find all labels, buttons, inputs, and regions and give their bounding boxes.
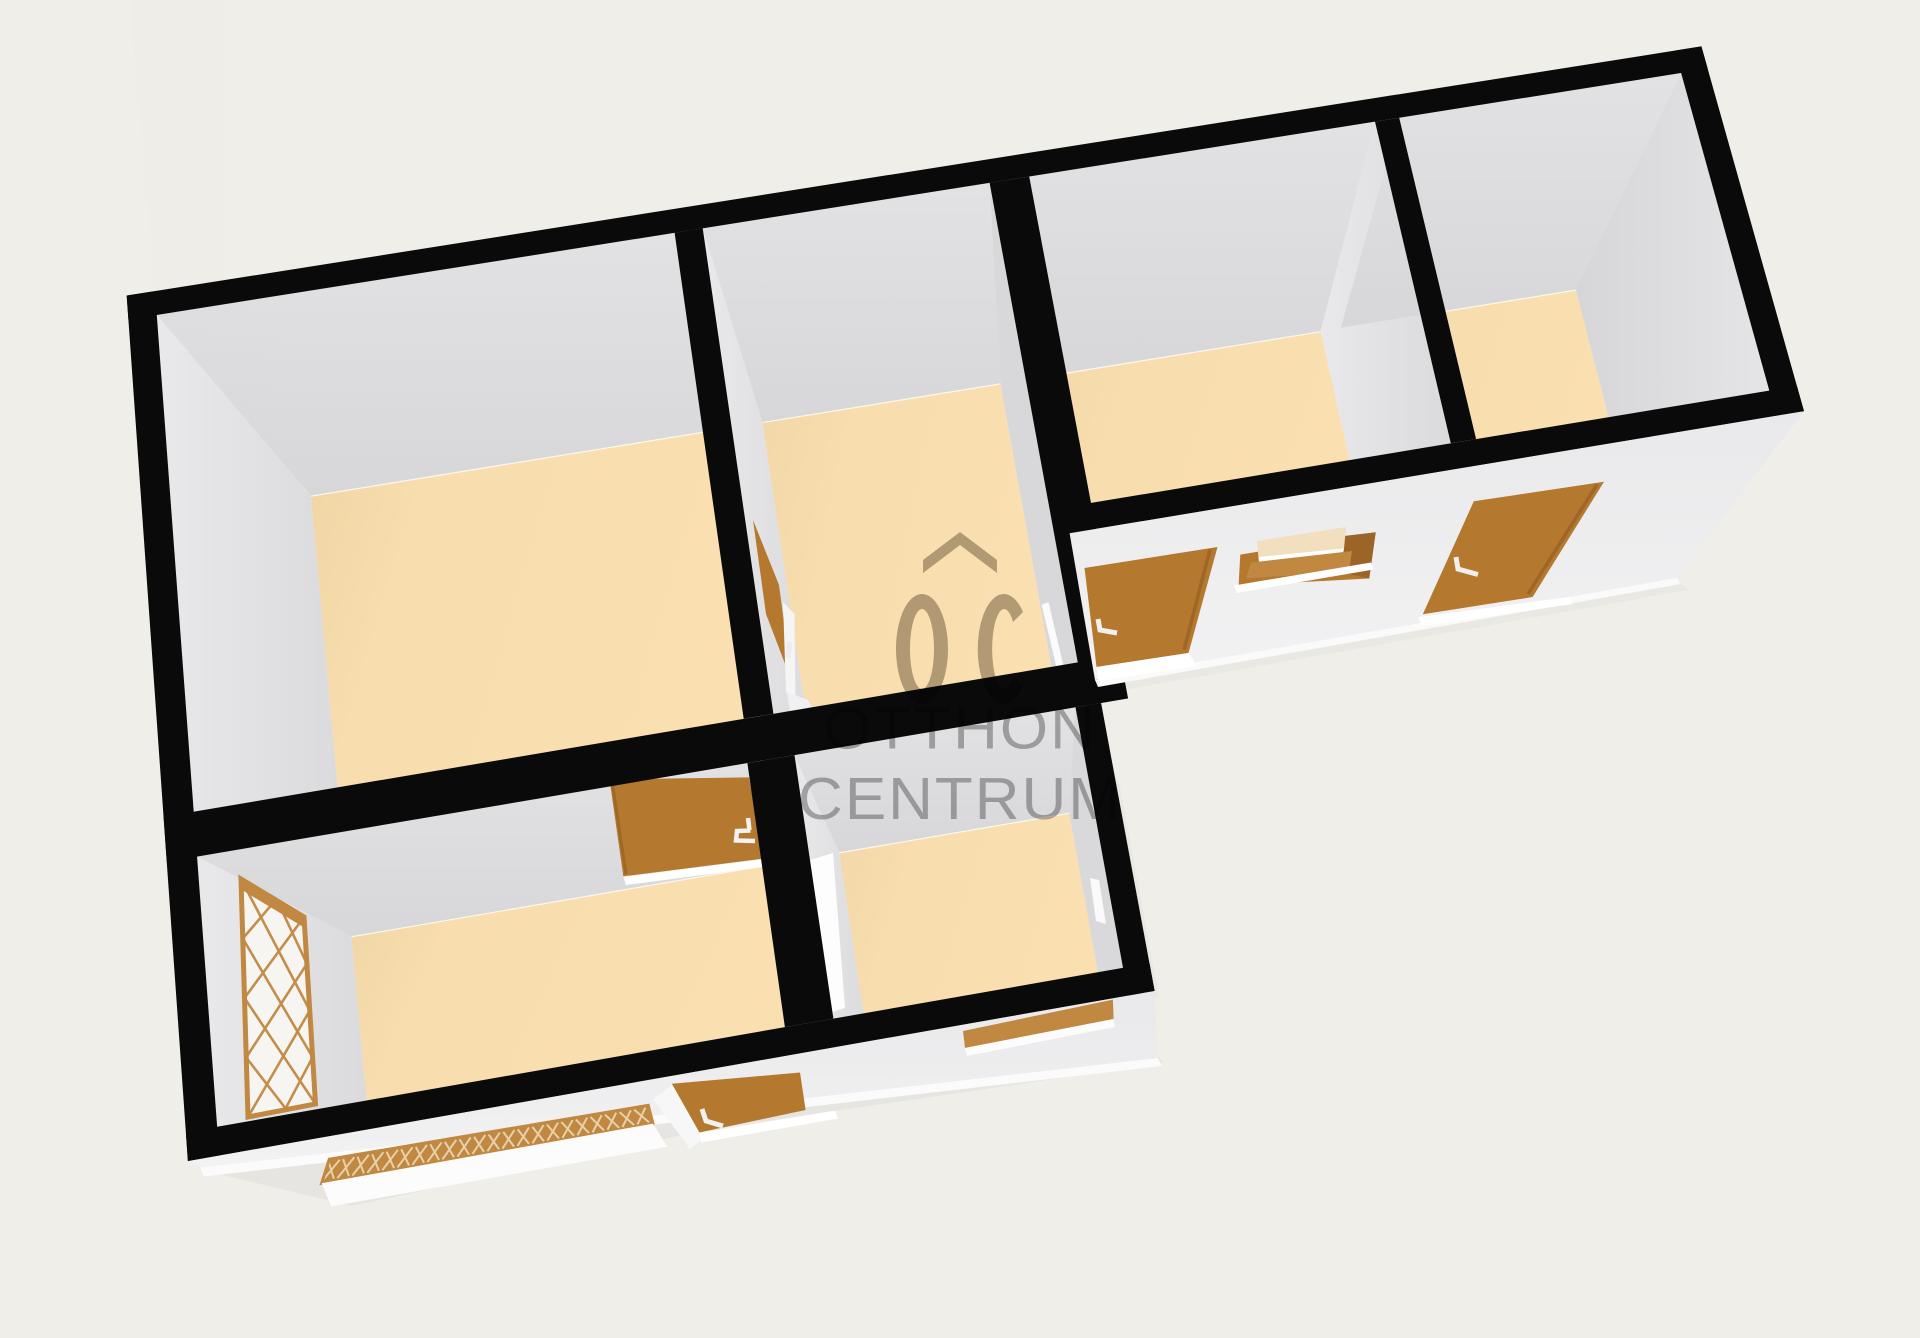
svg-text:OTTHON: OTTHON xyxy=(823,695,1097,761)
svg-text:CENTRUM: CENTRUM xyxy=(798,765,1122,831)
